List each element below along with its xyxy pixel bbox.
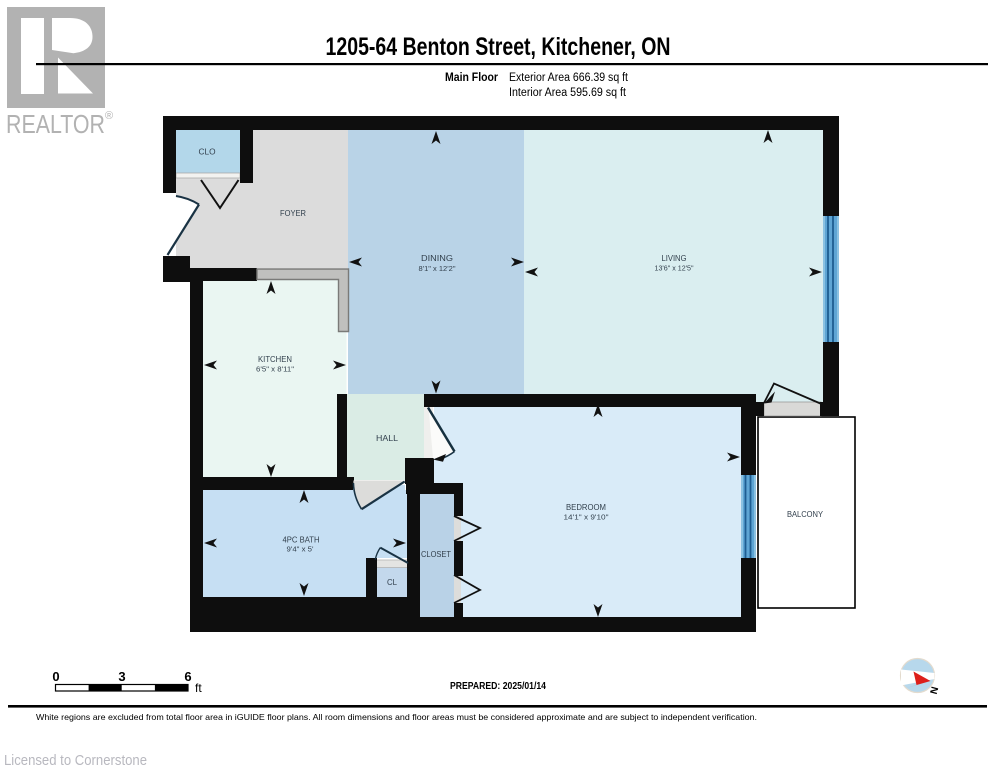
svg-text:4PC BATH: 4PC BATH (283, 536, 320, 545)
svg-text:6'5" x 8'11": 6'5" x 8'11" (256, 365, 294, 374)
svg-text:BEDROOM: BEDROOM (566, 503, 606, 512)
svg-text:Exterior Area 666.39 sq ft: Exterior Area 666.39 sq ft (509, 72, 629, 84)
svg-text:LIVING: LIVING (662, 254, 687, 263)
svg-text:CLOSET: CLOSET (421, 550, 451, 559)
svg-text:REALTOR: REALTOR (6, 109, 105, 139)
svg-text:3: 3 (118, 669, 125, 684)
svg-text:Licensed to Cornerstone: Licensed to Cornerstone (4, 752, 147, 768)
svg-text:HALL: HALL (376, 434, 399, 443)
svg-text:CL: CL (387, 578, 398, 587)
svg-text:6: 6 (184, 669, 191, 684)
svg-text:0: 0 (52, 669, 59, 684)
svg-text:FOYER: FOYER (280, 209, 306, 218)
svg-text:9'4" x 5': 9'4" x 5' (287, 545, 315, 554)
svg-text:ft: ft (195, 681, 202, 695)
svg-text:CLO: CLO (199, 148, 216, 157)
svg-text:White regions are excluded fro: White regions are excluded from total fl… (36, 713, 757, 722)
svg-text:®: ® (105, 110, 113, 122)
svg-text:13'6" x 12'5": 13'6" x 12'5" (655, 264, 694, 273)
svg-text:14'1" x 9'10": 14'1" x 9'10" (564, 513, 609, 522)
svg-text:Main Floor: Main Floor (445, 72, 498, 84)
svg-text:PREPARED: 2025/01/14: PREPARED: 2025/01/14 (450, 681, 546, 692)
svg-text:BALCONY: BALCONY (787, 510, 824, 519)
svg-text:DINING: DINING (421, 254, 453, 263)
svg-text:1205-64 Benton Street, Kitchen: 1205-64 Benton Street, Kitchener, ON (326, 33, 671, 61)
svg-text:KITCHEN: KITCHEN (258, 355, 292, 364)
svg-text:Interior Area 595.69 sq ft: Interior Area 595.69 sq ft (509, 87, 627, 99)
svg-text:8'1" x 12'2": 8'1" x 12'2" (419, 264, 456, 273)
